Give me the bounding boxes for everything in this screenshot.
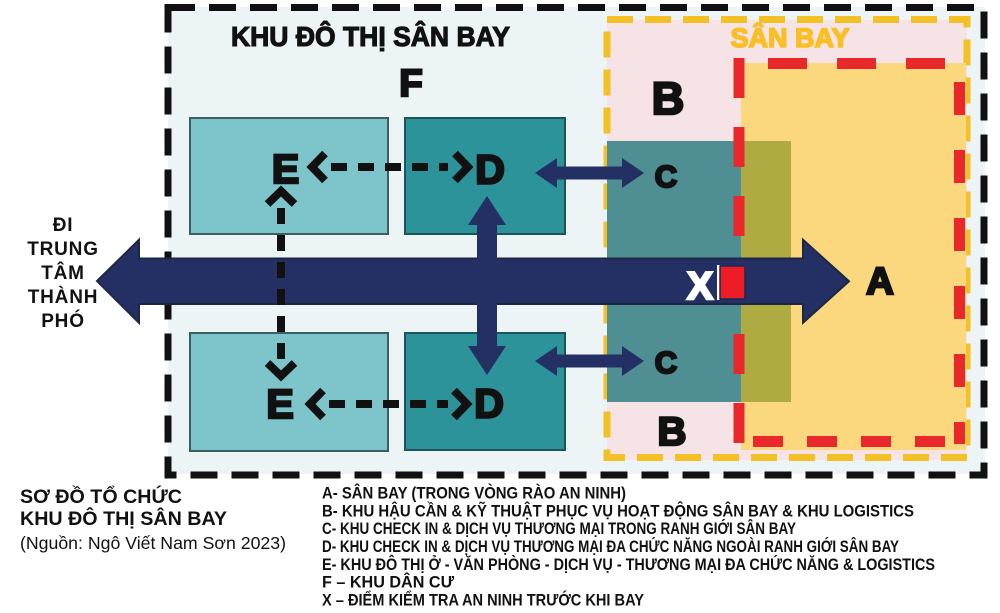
svg-text:F – KHU DÂN CƯ: F – KHU DÂN CƯ bbox=[322, 573, 455, 592]
svg-text:B: B bbox=[652, 73, 685, 124]
svg-text:B- KHU HẬU CẦN & KỸ THUẬT PHỤC: B- KHU HẬU CẦN & KỸ THUẬT PHỤC VỤ HOẠT Đ… bbox=[322, 500, 914, 520]
svg-text:F: F bbox=[399, 63, 422, 105]
svg-text:D- KHU CHECK IN & DỊCH VỤ THƯƠ: D- KHU CHECK IN & DỊCH VỤ THƯƠNG MẠI ĐA … bbox=[322, 537, 900, 556]
svg-text:KHU ĐÔ THỊ SÂN BAY: KHU ĐÔ THỊ SÂN BAY bbox=[231, 20, 510, 52]
svg-text:TRUNG: TRUNG bbox=[27, 239, 99, 260]
svg-text:A- SÂN BAY (TRONG VÒNG RÀO AN: A- SÂN BAY (TRONG VÒNG RÀO AN NINH) bbox=[322, 484, 626, 503]
svg-text:C: C bbox=[655, 159, 677, 194]
svg-text:(Nguồn: Ngô Viết Nam Sơn 2023): (Nguồn: Ngô Viết Nam Sơn 2023) bbox=[20, 533, 286, 553]
svg-text:D: D bbox=[475, 147, 505, 193]
svg-text:KHU ĐÔ THỊ SÂN BAY: KHU ĐÔ THỊ SÂN BAY bbox=[20, 508, 227, 530]
svg-text:E- KHU ĐÔ THỊ Ở - VĂN PHÒNG -: E- KHU ĐÔ THỊ Ở - VĂN PHÒNG - DỊCH VỤ - … bbox=[322, 555, 935, 574]
svg-text:SÂN BAY: SÂN BAY bbox=[730, 22, 849, 53]
svg-text:X: X bbox=[687, 265, 713, 308]
svg-text:C: C bbox=[655, 345, 677, 380]
svg-text:D: D bbox=[474, 381, 504, 427]
svg-text:X – ĐIỂM KIỂM TRA AN NINH TRƯỚ: X – ĐIỂM KIỂM TRA AN NINH TRƯỚC KHI BAY bbox=[322, 591, 645, 610]
svg-text:E: E bbox=[266, 381, 293, 427]
svg-text:E: E bbox=[272, 146, 299, 192]
svg-text:TÂM: TÂM bbox=[41, 262, 85, 284]
svg-text:B: B bbox=[658, 410, 687, 454]
svg-text:C- KHU CHECK IN & DỊCH VỤ THƯƠ: C- KHU CHECK IN & DỊCH VỤ THƯƠNG MẠI TRO… bbox=[322, 519, 797, 538]
svg-text:A: A bbox=[866, 261, 893, 303]
svg-text:SƠ ĐỒ TỔ CHỨC: SƠ ĐỒ TỔ CHỨC bbox=[20, 486, 182, 508]
svg-text:ĐI: ĐI bbox=[53, 215, 74, 236]
svg-text:PHÓ: PHÓ bbox=[41, 310, 85, 332]
svg-text:THÀNH: THÀNH bbox=[28, 286, 99, 308]
